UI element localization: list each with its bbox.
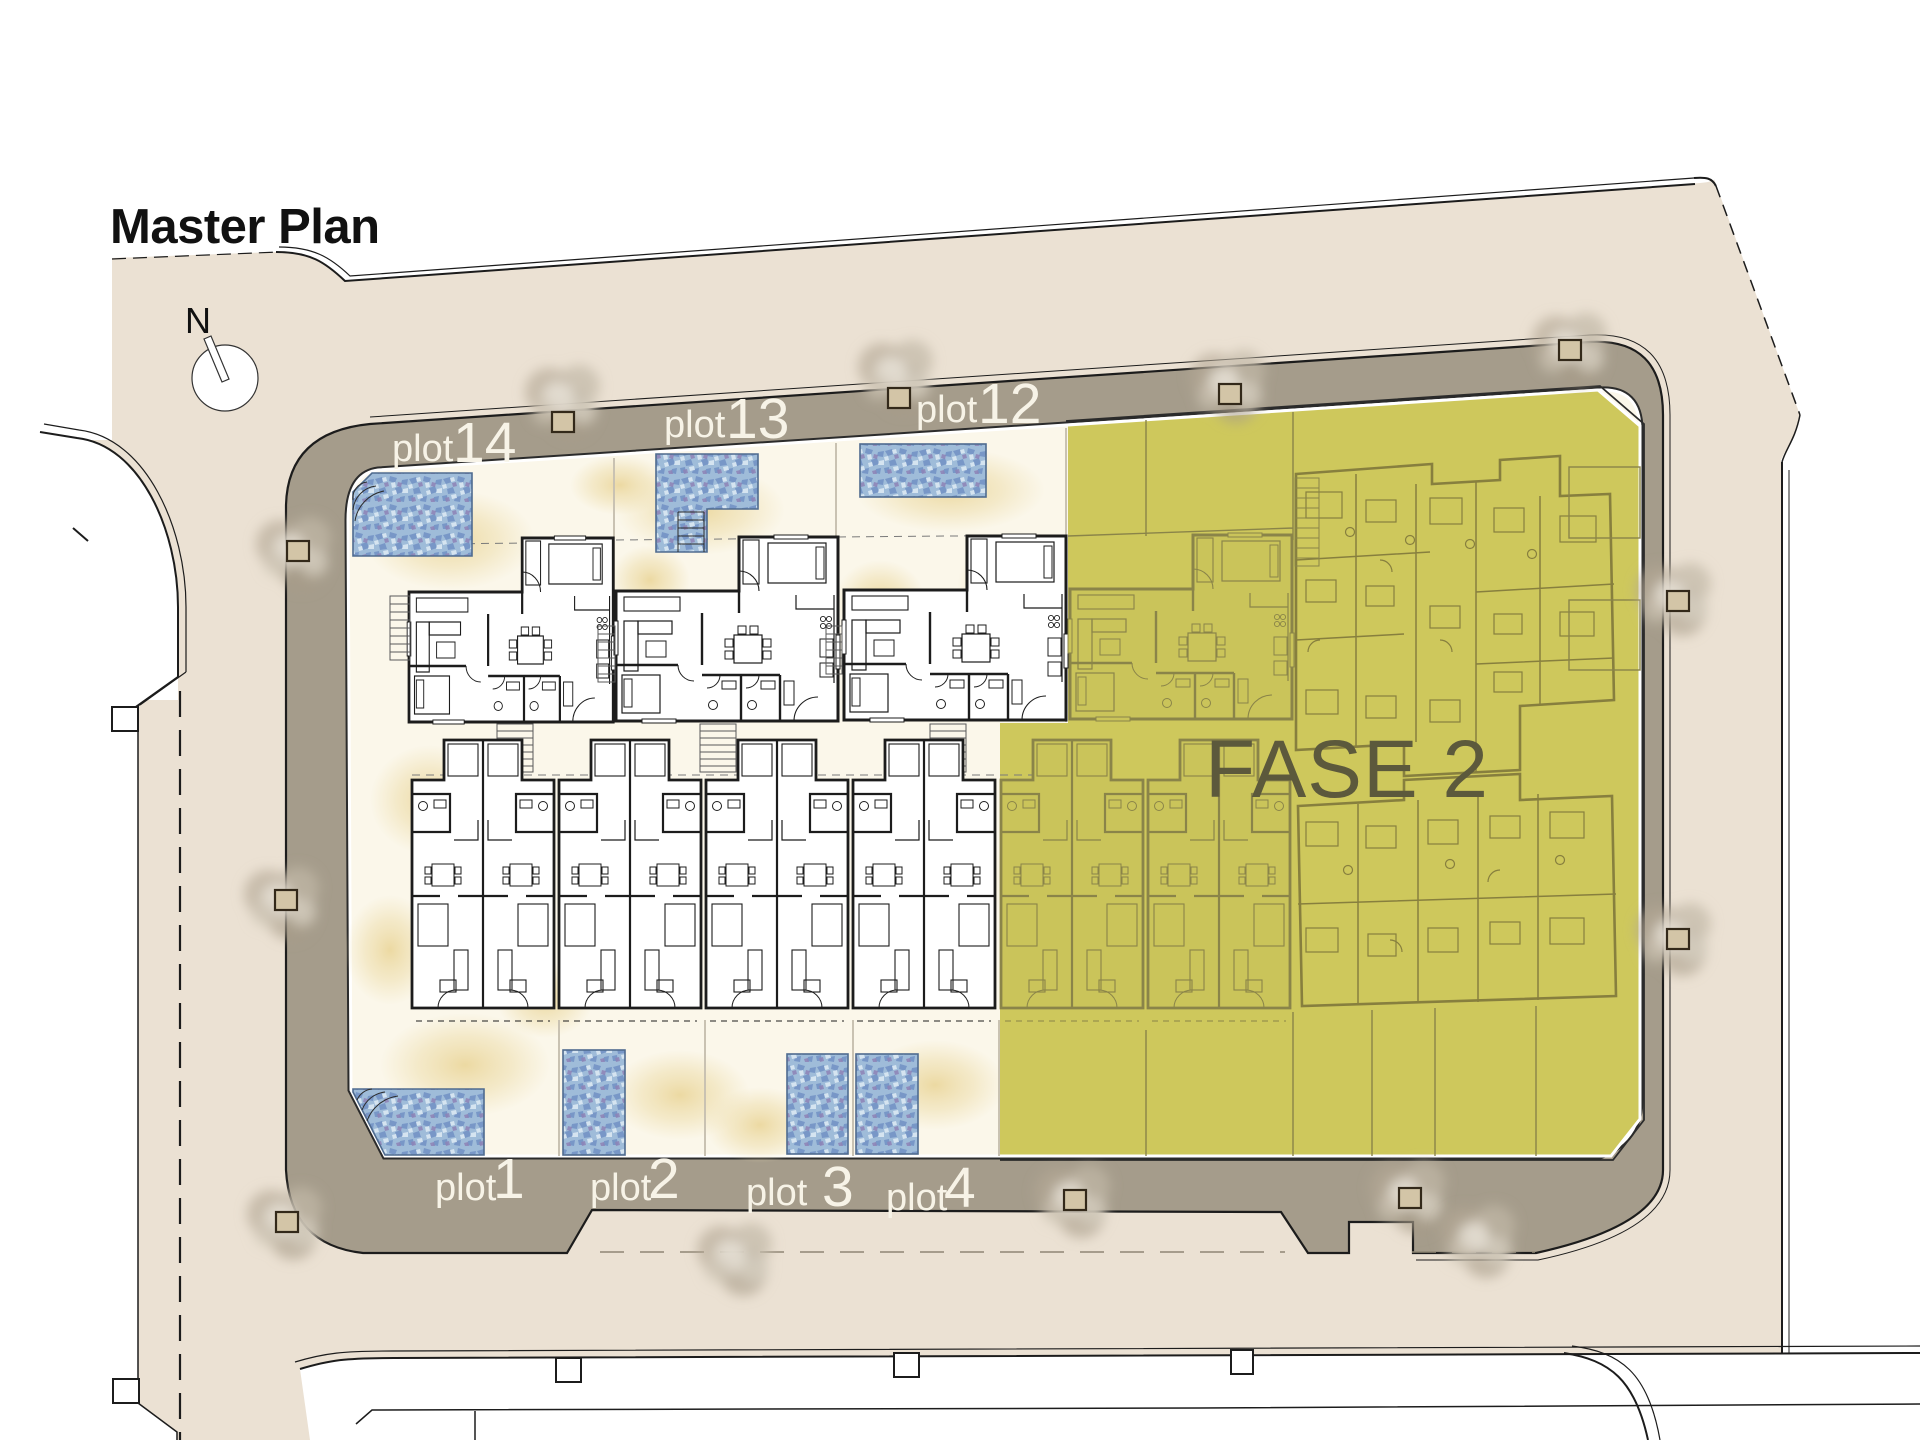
svg-text:plot: plot bbox=[392, 428, 454, 470]
svg-text:3: 3 bbox=[822, 1155, 854, 1219]
svg-text:1: 1 bbox=[493, 1147, 525, 1211]
svg-text:plot: plot bbox=[916, 389, 978, 431]
svg-text:FASE 2: FASE 2 bbox=[1205, 724, 1489, 815]
svg-text:12: 12 bbox=[978, 372, 1041, 436]
svg-text:2: 2 bbox=[648, 1147, 680, 1211]
svg-text:13: 13 bbox=[726, 387, 789, 451]
svg-text:plot: plot bbox=[590, 1167, 652, 1209]
svg-text:Master Plan: Master Plan bbox=[110, 200, 380, 254]
svg-text:N: N bbox=[185, 300, 211, 341]
svg-text:plot: plot bbox=[746, 1172, 808, 1214]
svg-text:4: 4 bbox=[944, 1156, 976, 1220]
svg-text:14: 14 bbox=[453, 411, 516, 475]
svg-text:plot: plot bbox=[664, 404, 726, 446]
svg-text:plot: plot bbox=[886, 1177, 948, 1219]
svg-text:plot: plot bbox=[435, 1167, 497, 1209]
